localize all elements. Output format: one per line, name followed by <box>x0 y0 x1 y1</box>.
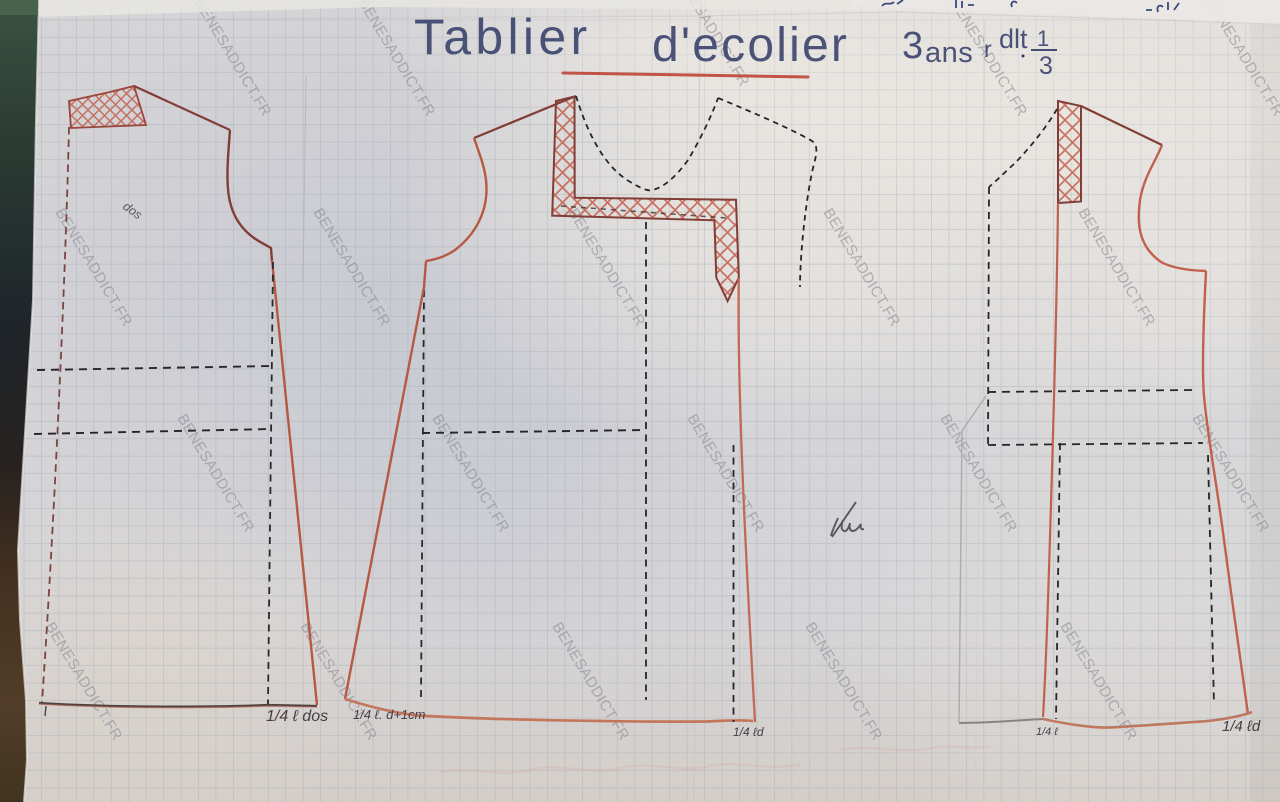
svg-text:Tablier: Tablier <box>414 9 591 65</box>
svg-text:1/4 ℓ dos: 1/4 ℓ dos <box>266 708 328 725</box>
svg-text:1/4 ℓ: 1/4 ℓ <box>1036 726 1058 738</box>
svg-text:ans: ans <box>925 37 973 69</box>
svg-text:d'ecolier: d'ecolier <box>652 19 849 72</box>
svg-text:3: 3 <box>1039 52 1053 80</box>
svg-text:3: 3 <box>902 25 923 67</box>
svg-text:dlt: dlt <box>999 24 1028 54</box>
svg-text:1/4 ℓd: 1/4 ℓd <box>733 725 764 739</box>
svg-text:r: r <box>984 36 992 62</box>
svg-text:1/4 ℓ. d+1cm: 1/4 ℓ. d+1cm <box>353 707 426 722</box>
svg-text:1: 1 <box>1037 26 1049 51</box>
svg-text:1/4 ℓd: 1/4 ℓd <box>1222 718 1261 735</box>
